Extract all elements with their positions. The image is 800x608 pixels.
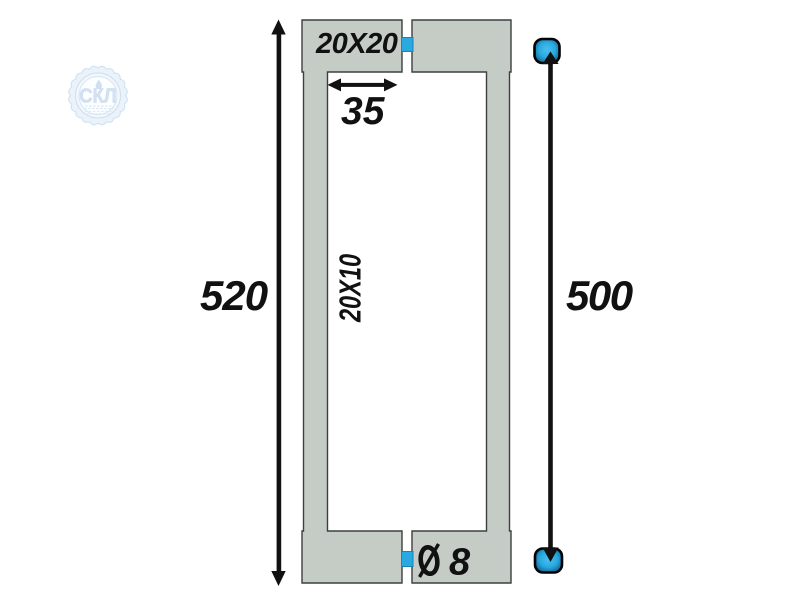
- svg-text:500: 500: [566, 272, 633, 319]
- svg-text:520: 520: [200, 272, 268, 319]
- svg-text:35: 35: [341, 90, 386, 133]
- svg-text:СКЛ: СКЛ: [79, 86, 116, 108]
- svg-text:20X10: 20X10: [332, 253, 367, 323]
- svg-text:20X20: 20X20: [315, 28, 398, 60]
- svg-text:8: 8: [449, 542, 471, 584]
